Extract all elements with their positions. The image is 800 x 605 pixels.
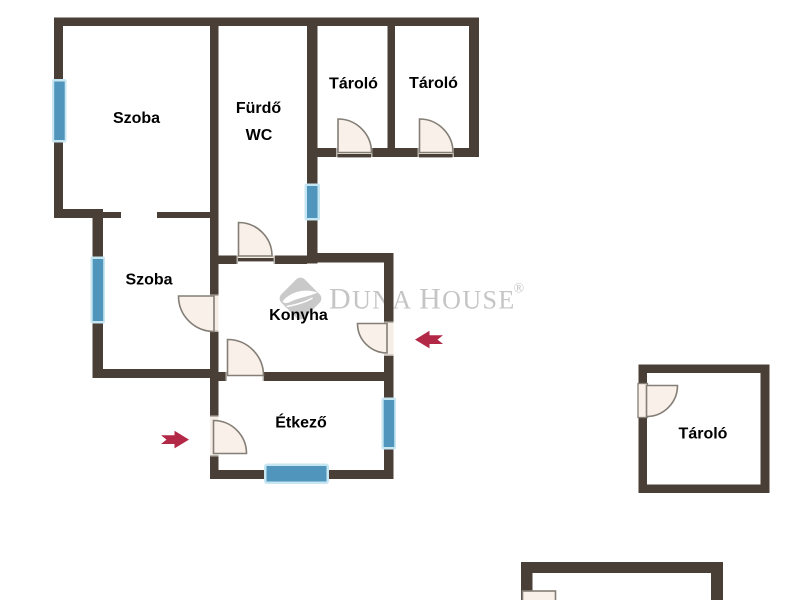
svg-text:Tároló: Tároló <box>329 76 378 93</box>
svg-text:DUNA HOUSE: DUNA HOUSE <box>329 283 516 316</box>
svg-text:WC: WC <box>246 127 273 144</box>
svg-text:Konyha: Konyha <box>269 307 328 324</box>
svg-text:®: ® <box>514 282 525 297</box>
svg-text:Tároló: Tároló <box>409 75 458 92</box>
svg-text:Szoba: Szoba <box>125 272 172 289</box>
svg-text:Szoba: Szoba <box>113 110 160 127</box>
svg-text:Fürdő: Fürdő <box>236 100 282 117</box>
svg-text:Tároló: Tároló <box>679 426 728 443</box>
svg-text:Étkező: Étkező <box>275 413 327 432</box>
